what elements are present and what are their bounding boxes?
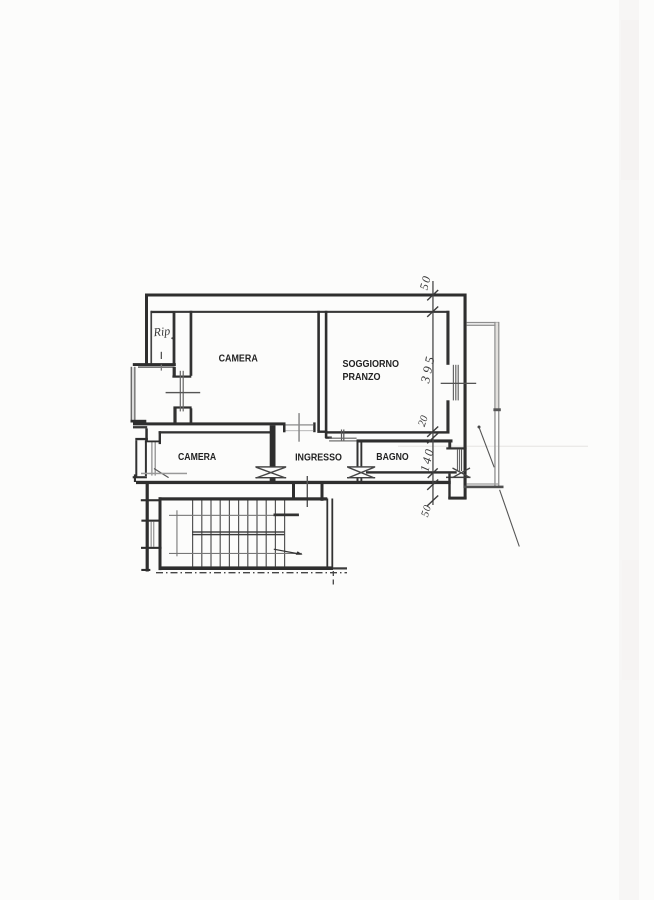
svg-text:Rip: Rip xyxy=(152,324,171,339)
svg-text:CAMERA: CAMERA xyxy=(219,353,258,364)
svg-text:SOGGIORNO: SOGGIORNO xyxy=(343,359,400,370)
svg-text:BAGNO: BAGNO xyxy=(376,452,409,463)
svg-text:PRANZO: PRANZO xyxy=(343,372,381,383)
svg-text:CAMERA: CAMERA xyxy=(178,452,216,463)
svg-text:INGRESSO: INGRESSO xyxy=(295,453,342,464)
